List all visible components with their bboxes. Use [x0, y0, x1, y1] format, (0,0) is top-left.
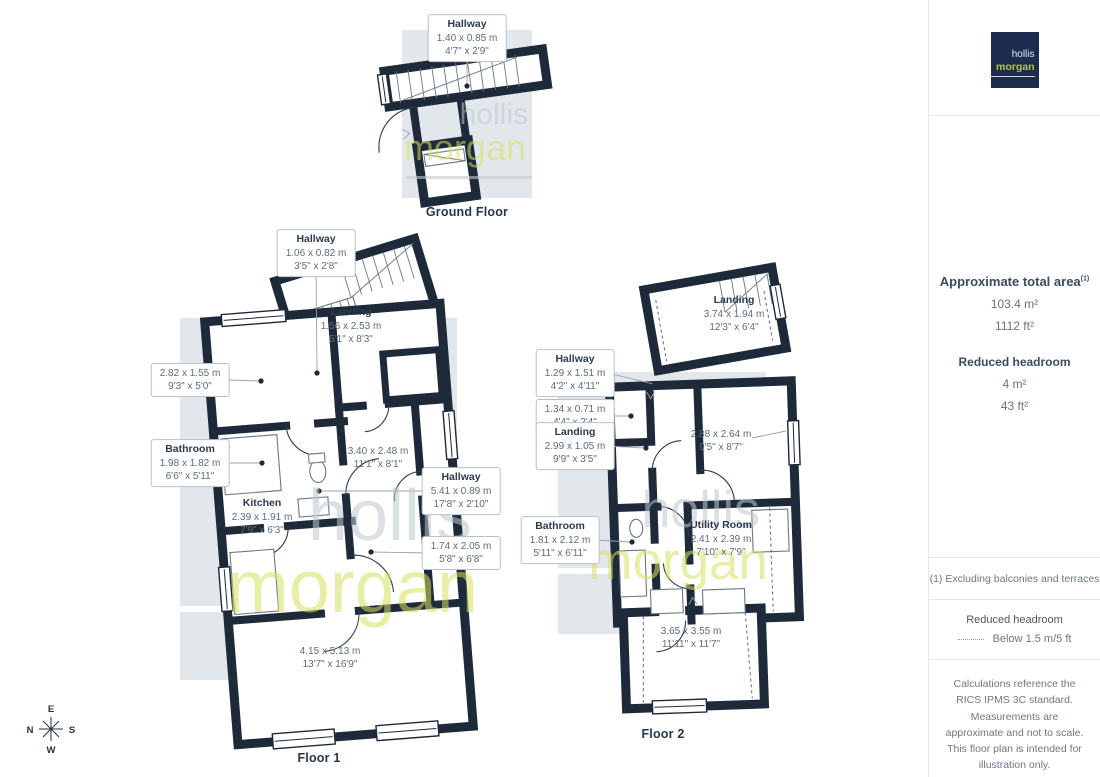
compass-icon: E N S W	[20, 700, 84, 760]
compass-bottom-letter: W	[47, 745, 56, 756]
disclaimer-section: Calculations reference the RICS IPMS 3C …	[929, 659, 1100, 777]
svg-text:morgan: morgan	[404, 127, 526, 168]
room-label-utility-room: Utility Room 2.41 x 2.39 m 7'10" x 7'9"	[690, 519, 752, 559]
total-area-title: Approximate total area(1)	[929, 274, 1100, 289]
total-area-ft2: 1112 ft²	[929, 319, 1100, 333]
floorplan-page: hollis morgan hollis morgan hollis morga…	[0, 0, 1100, 777]
room-label-dim-282: 2.82 x 1.55 m 9'3" x 5'0"	[151, 363, 230, 397]
floorplan-drawing: hollis morgan hollis morgan hollis morga…	[0, 0, 928, 777]
floor2-title: Floor 2	[641, 727, 684, 741]
footnote-marker: (1)	[1081, 276, 1090, 283]
reduced-headroom-m2: 4 m²	[929, 377, 1100, 391]
room-label-landing-f2-strip: Landing 2.99 x 1.05 m 9'9" x 3'5"	[536, 422, 615, 470]
legend-value: Below 1.5 m/5 ft	[993, 633, 1072, 645]
floor1-title: Floor 1	[297, 751, 340, 765]
logo-text-hollis: hollis	[991, 49, 1035, 61]
logo-rule	[991, 76, 1035, 77]
room-label-landing-f1: Landing 1.56 x 2.53 m 5'1" x 8'3"	[321, 306, 382, 346]
footnote-text: (1) Excluding balconies and terraces	[930, 573, 1100, 585]
reduced-headroom-title: Reduced headroom	[929, 355, 1100, 369]
room-label-dim-365: 3.65 x 3.55 m 11'11" x 11'7"	[661, 625, 722, 651]
room-label-hallway-ground: Hallway 1.40 x 0.85 m 4'7" x 2'9"	[428, 14, 507, 62]
legend-title: Reduced headroom	[966, 614, 1063, 626]
footnote-section: (1) Excluding balconies and terraces	[929, 557, 1100, 599]
room-label-hallway-f2: Hallway 1.29 x 1.51 m 4'2" x 4'11"	[536, 349, 615, 397]
room-label-dim-174: 1.74 x 2.05 m 5'8" x 6'8"	[422, 536, 501, 570]
info-sidebar: hollis morgan Approximate total area(1) …	[928, 0, 1100, 777]
ground-floor-title: Ground Floor	[426, 205, 508, 219]
dotted-line-icon	[958, 639, 984, 640]
reduced-headroom-ft2: 43 ft²	[929, 399, 1100, 413]
room-label-hallway-f1-right: Hallway 5.41 x 0.89 m 17'8" x 2'10"	[422, 467, 501, 515]
room-label-dim-415: 4.15 x 5.13 m 13'7" x 16'9"	[300, 645, 361, 671]
room-label-kitchen: Kitchen 2.39 x 1.91 m 7'9" x 6'3"	[232, 497, 293, 537]
room-label-bathroom-f2: Bathroom 1.81 x 2.12 m 5'11" x 6'11"	[521, 516, 600, 564]
legend-row: Below 1.5 m/5 ft	[958, 633, 1072, 645]
logo-text-morgan: morgan	[991, 61, 1035, 74]
legend-section: Reduced headroom Below 1.5 m/5 ft	[929, 599, 1100, 659]
room-label-bathroom-f1: Bathroom 1.98 x 1.82 m 6'6" x 5'11"	[151, 439, 230, 487]
hollis-morgan-logo: hollis morgan	[991, 32, 1039, 88]
compass-left-letter: N	[27, 725, 34, 736]
area-summary-section: Approximate total area(1) 103.4 m² 1112 …	[929, 115, 1100, 557]
room-label-landing-f2-top: Landing 3.74 x 1.94 m 12'3" x 6'4"	[704, 294, 765, 334]
logo-section: hollis morgan	[929, 0, 1100, 115]
compass-right-letter: S	[69, 725, 75, 736]
compass-top-letter: E	[48, 704, 54, 715]
room-label-hallway-f1-top: Hallway 1.06 x 0.82 m 3'5" x 2'8"	[277, 229, 356, 277]
total-area-m2: 103.4 m²	[929, 297, 1100, 311]
disclaimer-text: Calculations reference the RICS IPMS 3C …	[941, 676, 1088, 774]
room-label-dim-288: 2.88 x 2.64 m 9'5" x 8'7"	[691, 428, 752, 454]
room-label-dim-340: 3.40 x 2.48 m 11'1" x 8'1"	[348, 445, 409, 471]
